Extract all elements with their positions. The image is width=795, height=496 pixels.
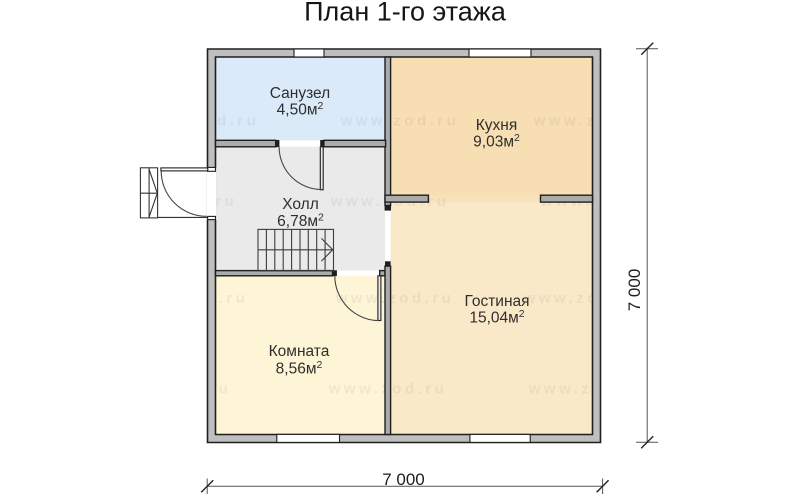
svg-text:www.zod.ru: www.zod.ru: [335, 290, 455, 307]
svg-text:9,03м2: 9,03м2: [473, 132, 520, 151]
svg-text:www.zod.ru: www.zod.ru: [528, 381, 648, 398]
svg-text:Кухня: Кухня: [476, 117, 517, 134]
svg-text:www.zod.ru: www.zod.ru: [140, 113, 260, 130]
svg-text:План 1-го этажа: План 1-го этажа: [304, 0, 507, 27]
svg-text:4,50м2: 4,50м2: [277, 100, 324, 119]
svg-text:Комната: Комната: [269, 343, 330, 360]
svg-text:15,04м2: 15,04м2: [469, 308, 524, 327]
svg-text:7 000: 7 000: [382, 470, 425, 489]
svg-text:6,78м2: 6,78м2: [277, 211, 324, 230]
svg-text:7 000: 7 000: [625, 269, 644, 312]
svg-text:www.zod.ru: www.zod.ru: [129, 290, 249, 307]
svg-text:8,56м2: 8,56м2: [276, 359, 323, 378]
svg-text:Холл: Холл: [282, 196, 319, 213]
svg-text:www.zod.ru: www.zod.ru: [340, 113, 460, 130]
svg-text:www.zod.ru: www.zod.ru: [118, 193, 238, 210]
